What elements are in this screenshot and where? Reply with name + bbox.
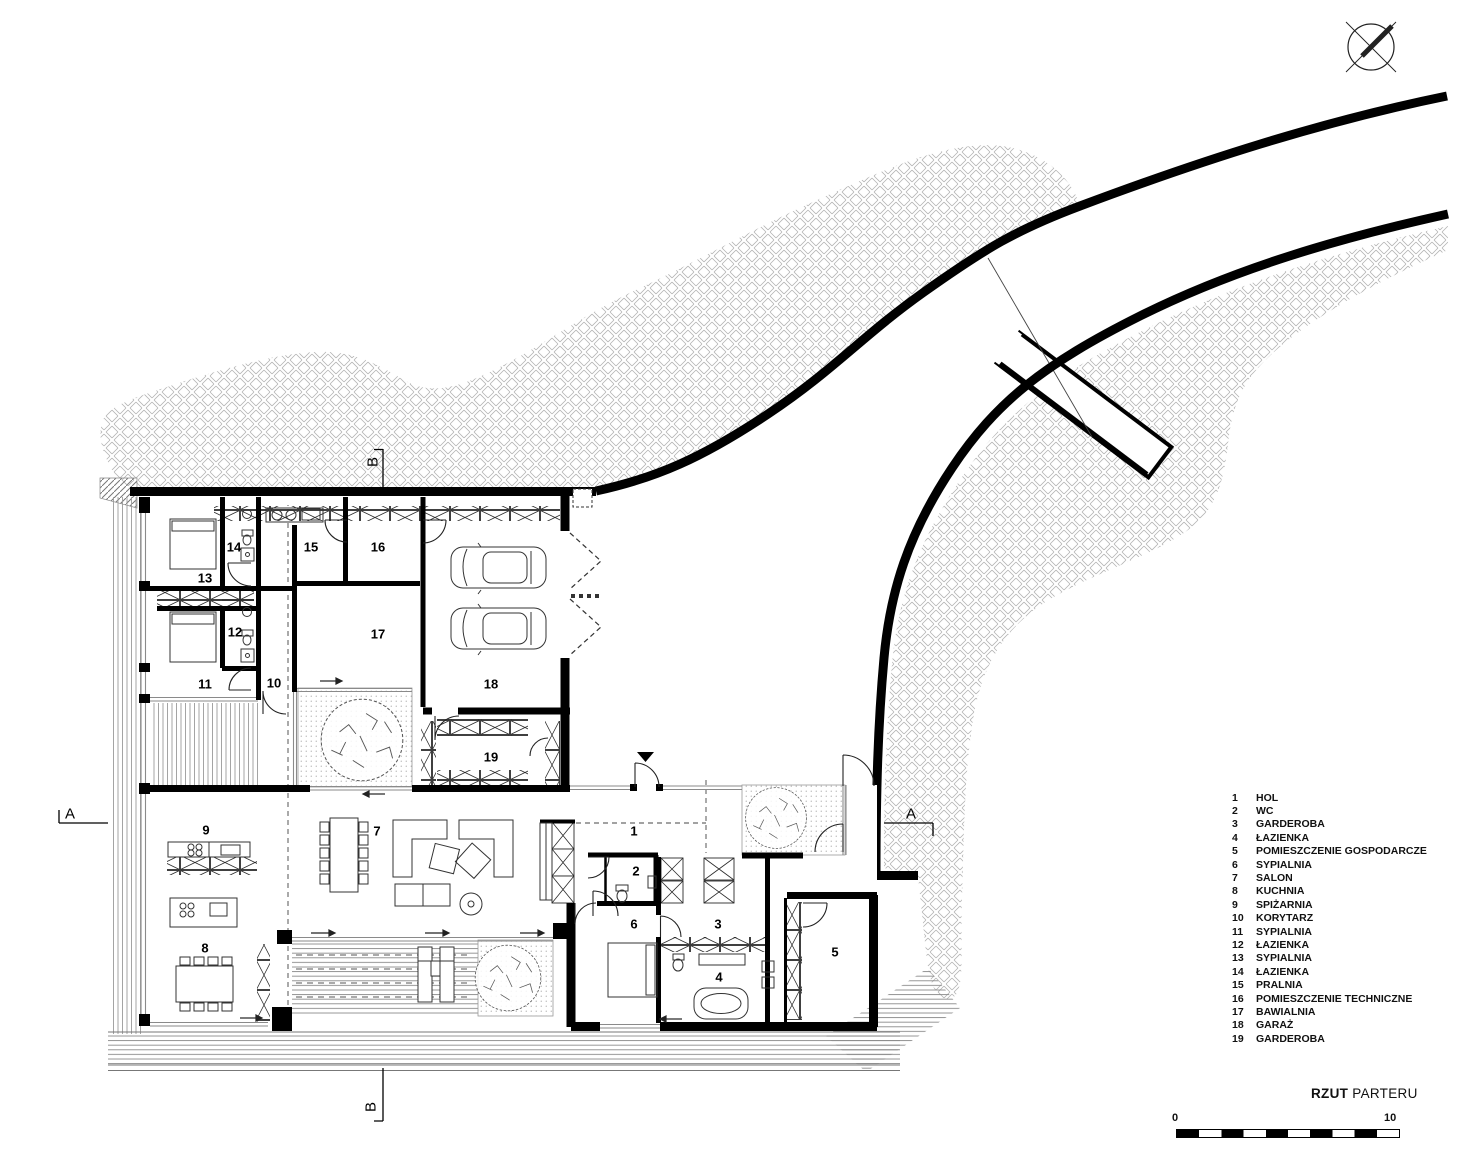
room-label-14: 14	[227, 540, 241, 555]
room-label-6: 6	[630, 917, 637, 932]
scale-bar	[1176, 1129, 1400, 1138]
legend-row: 8KUCHNIA	[1232, 885, 1468, 898]
room-legend: 1HOL 2WC 3GARDEROBA 4ŁAZIENKA 5POMIESZCZ…	[1232, 791, 1468, 1045]
room-label-13: 13	[198, 571, 212, 586]
legend-row: 7SALON	[1232, 871, 1468, 884]
legend-row: 4ŁAZIENKA	[1232, 831, 1468, 844]
legend-number: 4	[1232, 832, 1256, 844]
legend-name: GARDEROBA	[1256, 818, 1325, 830]
legend-row: 6SYPIALNIA	[1232, 858, 1468, 871]
room-label-7: 7	[373, 824, 380, 839]
room-label-2: 2	[632, 864, 639, 879]
scale-end-label: 10	[1384, 1112, 1396, 1124]
room-label-18: 18	[484, 677, 498, 692]
room-label-15: 15	[304, 540, 318, 555]
legend-name: ŁAZIENKA	[1256, 832, 1309, 844]
legend-row: 13SYPIALNIA	[1232, 952, 1468, 965]
legend-name: SPIŻARNIA	[1256, 899, 1313, 911]
legend-number: 17	[1232, 1006, 1256, 1018]
room-label-16: 16	[371, 540, 385, 555]
legend-row: 19GARDEROBA	[1232, 1032, 1468, 1045]
title-main: RZUT	[1311, 1086, 1348, 1101]
room-label-11: 11	[198, 677, 212, 692]
legend-name: KUCHNIA	[1256, 885, 1304, 897]
scale-start-label: 0	[1172, 1112, 1178, 1124]
legend-row: 9SPIŻARNIA	[1232, 898, 1468, 911]
legend-number: 18	[1232, 1019, 1256, 1031]
room-label-5: 5	[831, 945, 838, 960]
legend-number: 6	[1232, 859, 1256, 871]
drawing-title: RZUT PARTERU	[1311, 1086, 1418, 1101]
legend-number: 9	[1232, 899, 1256, 911]
north-arrow-compass-icon	[1346, 22, 1396, 72]
legend-row: 10KORYTARZ	[1232, 912, 1468, 925]
legend-number: 2	[1232, 805, 1256, 817]
section-b-top-label: B	[365, 457, 382, 467]
legend-row: 16POMIESZCZENIE TECHNICZNE	[1232, 992, 1468, 1005]
legend-name: BAWIALNIA	[1256, 1006, 1316, 1018]
room-label-4: 4	[715, 970, 722, 985]
room-label-3: 3	[714, 917, 721, 932]
legend-number: 11	[1232, 926, 1256, 938]
legend-number: 7	[1232, 872, 1256, 884]
legend-row: 5POMIESZCZENIE GOSPODARCZE	[1232, 845, 1468, 858]
legend-row: 11SYPIALNIA	[1232, 925, 1468, 938]
legend-name: PRALNIA	[1256, 979, 1303, 991]
legend-number: 16	[1232, 993, 1256, 1005]
legend-name: POMIESZCZENIE GOSPODARCZE	[1256, 845, 1427, 857]
legend-name: HOL	[1256, 792, 1278, 804]
legend-name: ŁAZIENKA	[1256, 966, 1309, 978]
legend-name: KORYTARZ	[1256, 912, 1313, 924]
legend-name: SYPIALNIA	[1256, 859, 1312, 871]
legend-name: ŁAZIENKA	[1256, 939, 1309, 951]
legend-number: 13	[1232, 952, 1256, 964]
legend-row: 1HOL	[1232, 791, 1468, 804]
legend-row: 15PRALNIA	[1232, 978, 1468, 991]
legend-name: SYPIALNIA	[1256, 952, 1312, 964]
legend-row: 3GARDEROBA	[1232, 818, 1468, 831]
room-label-8: 8	[201, 941, 208, 956]
legend-name: WC	[1256, 805, 1274, 817]
section-b-bottom-label: B	[363, 1102, 380, 1112]
legend-number: 15	[1232, 979, 1256, 991]
legend-row: 18GARAŻ	[1232, 1019, 1468, 1032]
entrance-direction-triangle-icon	[637, 752, 654, 762]
legend-number: 12	[1232, 939, 1256, 951]
legend-row: 17BAWIALNIA	[1232, 1005, 1468, 1018]
legend-number: 3	[1232, 818, 1256, 830]
legend-name: POMIESZCZENIE TECHNICZNE	[1256, 993, 1412, 1005]
legend-number: 5	[1232, 845, 1256, 857]
room-label-17: 17	[371, 627, 385, 642]
legend-number: 8	[1232, 885, 1256, 897]
room-label-12: 12	[228, 625, 242, 640]
legend-row: 12ŁAZIENKA	[1232, 938, 1468, 951]
legend-name: GARAŻ	[1256, 1019, 1293, 1031]
section-a-left-label: A	[65, 806, 75, 823]
room-label-10: 10	[267, 676, 281, 691]
legend-number: 1	[1232, 792, 1256, 804]
legend-name: SYPIALNIA	[1256, 926, 1312, 938]
room-label-9: 9	[202, 823, 209, 838]
legend-name: GARDEROBA	[1256, 1033, 1325, 1045]
legend-name: SALON	[1256, 872, 1293, 884]
legend-row: 2WC	[1232, 804, 1468, 817]
legend-number: 10	[1232, 912, 1256, 924]
floor-plan-page: { "title": { "main": "RZUT", "sub": "PAR…	[0, 0, 1470, 1176]
legend-number: 19	[1232, 1033, 1256, 1045]
legend-row: 14ŁAZIENKA	[1232, 965, 1468, 978]
room-label-19: 19	[484, 750, 498, 765]
section-a-right-label: A	[906, 806, 916, 823]
room-label-1: 1	[630, 824, 637, 839]
title-sub: PARTERU	[1352, 1086, 1417, 1101]
legend-number: 14	[1232, 966, 1256, 978]
